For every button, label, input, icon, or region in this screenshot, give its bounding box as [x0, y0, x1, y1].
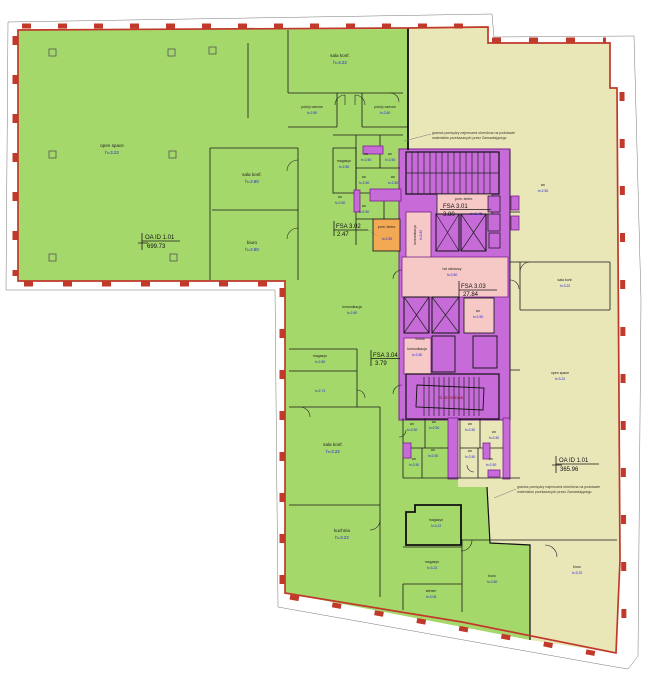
svg-text:h=3.22: h=3.22: [560, 284, 571, 288]
label-biuro-green: biuro: [488, 574, 496, 578]
floor-plan: open space h=3.22 sala konf. h=3.22 pokó…: [0, 0, 646, 680]
svg-text:h=2.80: h=2.80: [307, 111, 318, 115]
svg-text:h=2.50: h=2.50: [465, 455, 476, 459]
svg-text:365.96: 365.96: [560, 467, 579, 473]
svg-text:wc: wc: [489, 457, 494, 461]
label-magazyn-mid: magazyn: [313, 354, 327, 358]
room-hol-windowy: [402, 257, 508, 297]
svg-text:h=3.22: h=3.22: [427, 566, 438, 570]
label-biuro-280: biuro: [247, 240, 258, 245]
label-serwer: serwer: [426, 589, 437, 593]
svg-text:FSA 3.01: FSA 3.01: [443, 204, 468, 210]
svg-text:wc: wc: [468, 422, 473, 426]
svg-text:h=3.08: h=3.08: [426, 595, 437, 599]
label-sala-konf-top: sala konf.: [330, 53, 350, 58]
svg-text:3.79: 3.79: [375, 361, 387, 367]
svg-text:h=2.80: h=2.80: [487, 580, 498, 584]
label-hol-windowy: hol windowy: [442, 267, 461, 271]
label-magazyn-box: magazyn: [429, 518, 443, 522]
svg-text:wc: wc: [468, 449, 473, 453]
svg-text:h=2.80: h=2.80: [315, 360, 326, 364]
svg-text:wc: wc: [412, 457, 417, 461]
elevator-shafts-top: [436, 214, 486, 251]
svg-text:granica pomiędzy najemcami okr: granica pomiędzy najemcami określona na …: [432, 131, 515, 135]
label-pokoj-rozmow-left: pokój rozmów: [301, 105, 323, 109]
label-pom-techn-orange: pom. techn.: [378, 225, 396, 229]
label-open-space-yellow: open space: [551, 371, 569, 375]
svg-text:h=2.80: h=2.80: [412, 353, 423, 357]
svg-text:h=2.80: h=2.80: [347, 311, 358, 315]
svg-text:2.47: 2.47: [337, 232, 349, 238]
svg-text:materiałów przekazanych przez: materiałów przekazanych przez Zamawiając…: [517, 490, 592, 494]
svg-text:wc: wc: [432, 420, 437, 424]
label-magazyn-2: magazyn: [425, 560, 439, 564]
svg-text:wc: wc: [476, 309, 481, 313]
label-h273: h=2.73: [315, 389, 326, 393]
svg-text:wc: wc: [362, 204, 367, 208]
svg-text:h=2.50: h=2.50: [382, 237, 393, 241]
svg-text:h=2.80: h=2.80: [447, 273, 458, 277]
svg-text:3.80: 3.80: [443, 212, 455, 218]
svg-text:h=2.50: h=2.50: [335, 201, 346, 205]
svg-text:h=3.22: h=3.22: [105, 150, 119, 155]
svg-text:h=2.50: h=2.50: [409, 463, 420, 467]
svg-text:h=2.50: h=2.50: [359, 181, 370, 185]
svg-text:wc: wc: [492, 430, 497, 434]
label-pokoj-rozmow-right: pokój rozmów: [374, 105, 396, 109]
svg-text:h=2.50: h=2.50: [473, 315, 484, 319]
svg-text:h=2.50: h=2.50: [361, 158, 372, 162]
label-sala-konf-280: sala konf.: [242, 172, 262, 177]
label-sala-konf-bottom: sala konf.: [323, 442, 343, 447]
svg-text:OA ID 1.01: OA ID 1.01: [145, 235, 175, 241]
label-magazyn-top: magazyn: [337, 159, 351, 163]
svg-text:materiałów przekazanych przez: materiałów przekazanych przez Zamawiając…: [432, 136, 507, 140]
svg-text:h=3.22: h=3.22: [335, 535, 349, 540]
label-open-space-green: open space: [100, 143, 124, 148]
svg-text:FSA 3.04: FSA 3.04: [373, 353, 398, 359]
svg-text:h=2.50: h=2.50: [407, 428, 418, 432]
label-pom-techn-core: pom. techn.: [455, 197, 473, 201]
svg-text:h=2.50: h=2.50: [428, 454, 439, 458]
svg-text:FSA 3.02: FSA 3.02: [336, 224, 361, 230]
elevator-shafts-middle: [404, 297, 459, 333]
svg-text:h=2.80: h=2.80: [339, 165, 350, 169]
svg-text:h=2.50: h=2.50: [486, 463, 497, 467]
svg-text:h=2.50: h=2.50: [385, 158, 396, 162]
svg-text:wc: wc: [338, 195, 343, 199]
svg-text:komunikacja: komunikacja: [413, 225, 417, 245]
label-komunikacja-green: komunikacja: [342, 305, 362, 309]
label-biuro-yellow: biuro: [573, 565, 581, 569]
label-komunikacja-small: komunikacja: [407, 347, 427, 351]
svg-text:wc: wc: [410, 422, 415, 426]
svg-text:h=3.22: h=3.22: [555, 377, 566, 381]
svg-text:h=2.50: h=2.50: [489, 436, 500, 440]
svg-text:wc: wc: [364, 152, 369, 156]
label-kl-schodowa: kl. schodowa: [439, 395, 464, 400]
svg-text:h=3.22: h=3.22: [326, 449, 340, 454]
svg-text:wc: wc: [362, 175, 367, 179]
svg-text:h=3.45: h=3.45: [470, 211, 483, 216]
svg-text:FSA 3.03: FSA 3.03: [461, 284, 486, 290]
svg-text:h=3.22: h=3.22: [333, 60, 347, 65]
svg-text:h=2.50: h=2.50: [465, 428, 476, 432]
svg-text:h=2.80: h=2.80: [419, 230, 423, 241]
svg-text:wc: wc: [541, 183, 546, 187]
svg-text:OA ID 1.01: OA ID 1.01: [559, 458, 589, 464]
svg-text:h=2.50: h=2.50: [538, 189, 549, 193]
svg-text:h=2.50: h=2.50: [359, 210, 370, 214]
svg-text:h=2.80: h=2.80: [245, 179, 259, 184]
svg-text:h=3.22: h=3.22: [572, 571, 583, 575]
svg-text:wc: wc: [391, 175, 396, 179]
room-pom-techn-fsa302: [373, 219, 400, 251]
svg-text:granica pomiędzy najemcami okr: granica pomiędzy najemcami określona na …: [517, 485, 600, 489]
svg-text:27.84: 27.84: [463, 292, 479, 298]
svg-text:h=2.50: h=2.50: [429, 426, 440, 430]
svg-text:h=2.80: h=2.80: [245, 247, 259, 252]
label-sala-konf-yellow: sala konf.: [558, 278, 573, 282]
label-winda: winda: [415, 337, 424, 341]
svg-text:wc: wc: [431, 448, 436, 452]
label-kuchnia: kuchnia: [334, 528, 350, 533]
svg-text:h=3.22: h=3.22: [431, 524, 442, 528]
svg-text:699.73: 699.73: [147, 244, 166, 250]
staircase-top: [406, 152, 499, 194]
svg-text:h=2.80: h=2.80: [380, 111, 391, 115]
svg-text:h=2.50: h=2.50: [388, 181, 399, 185]
svg-text:wc: wc: [388, 152, 393, 156]
